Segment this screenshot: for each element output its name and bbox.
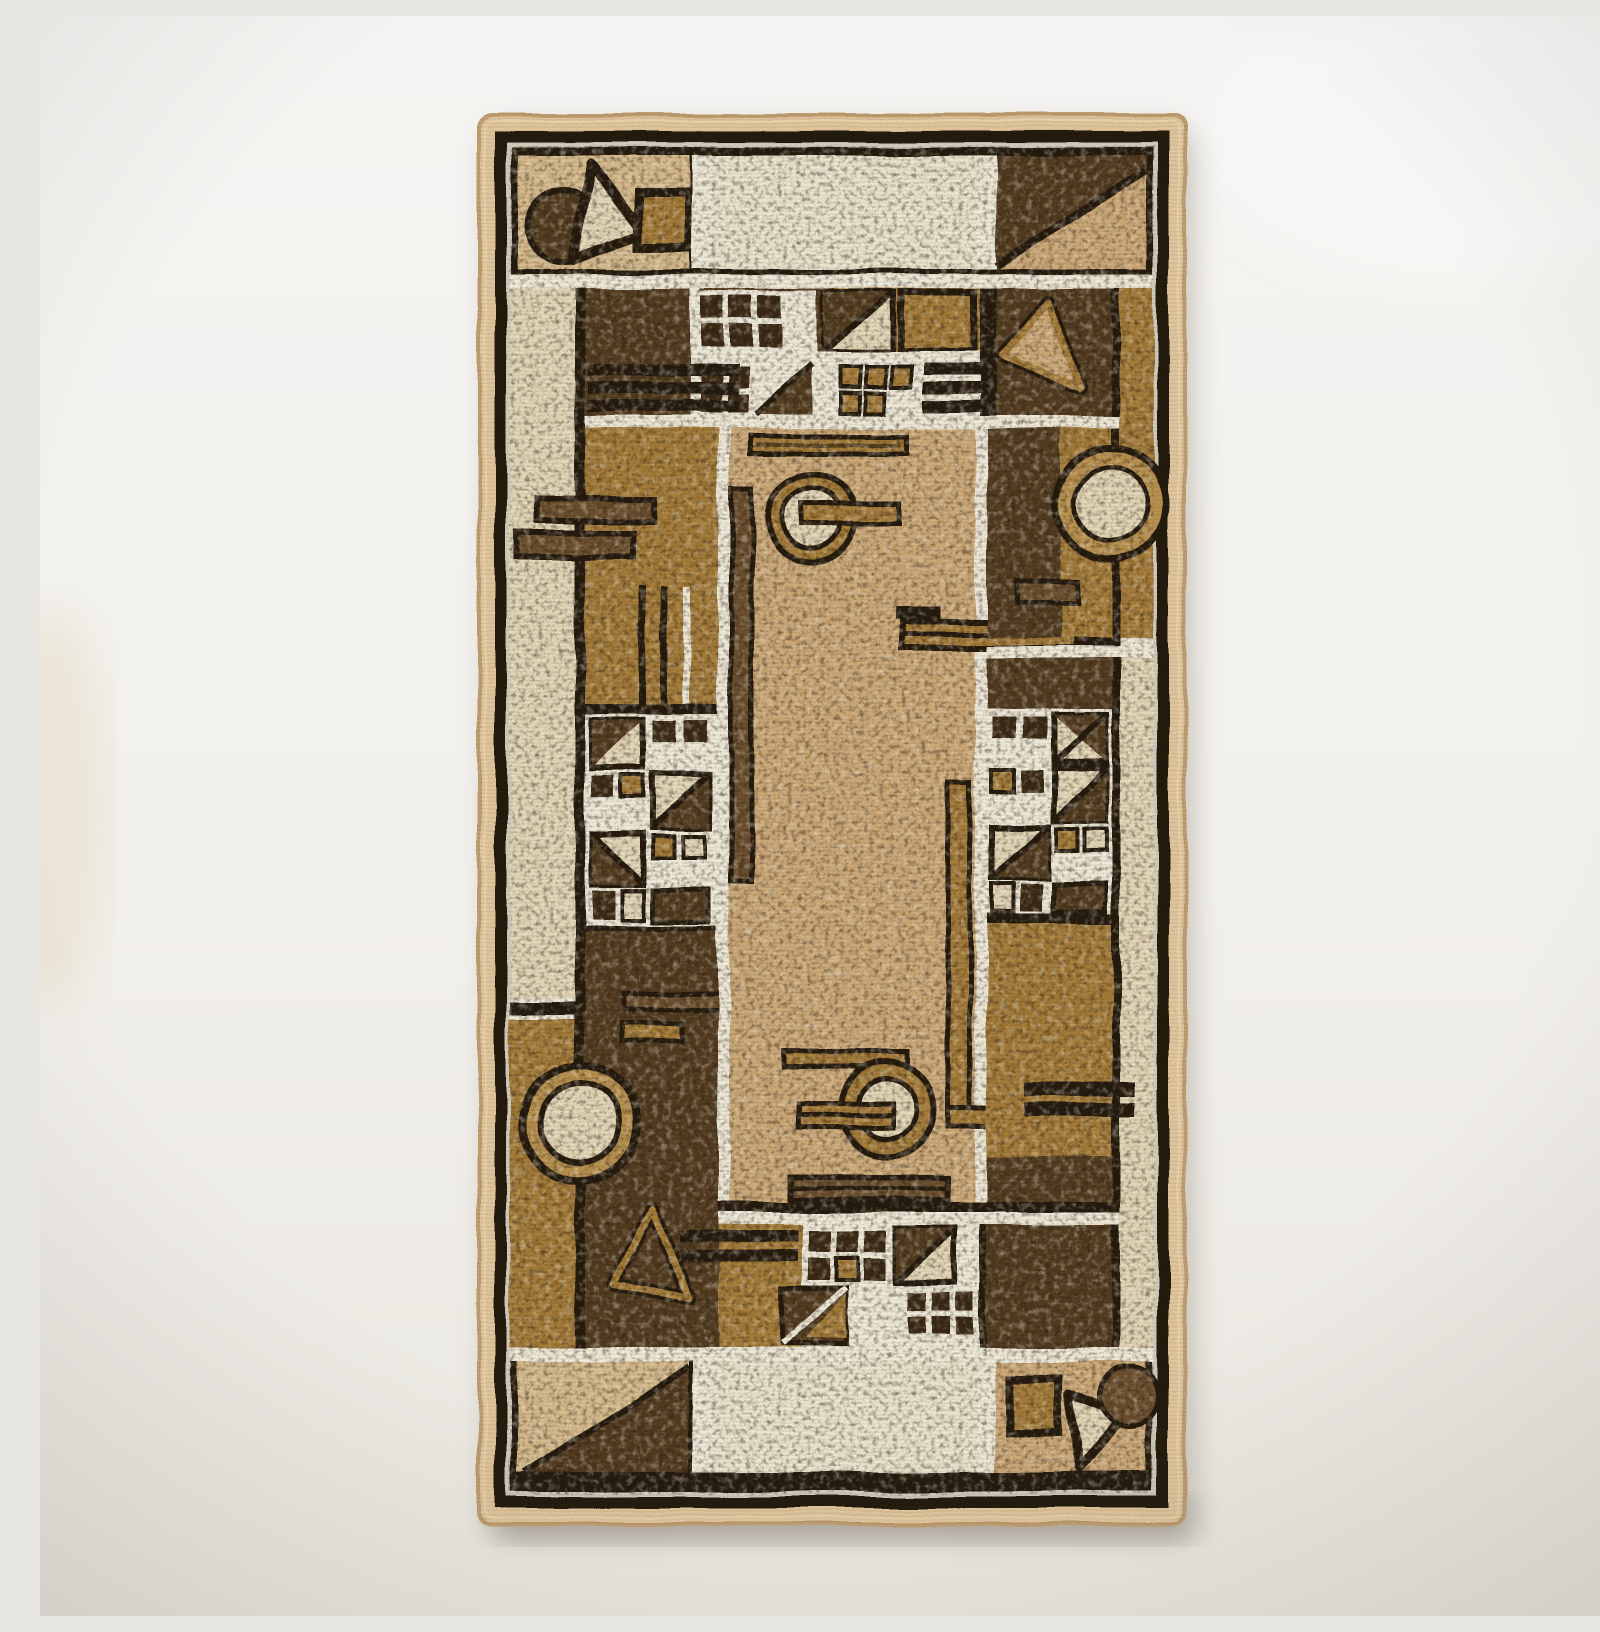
photo-canvas <box>40 16 1600 1616</box>
vignette <box>40 16 1600 1616</box>
photo-of-rug: Top-down photo of a vertical rectangular… <box>40 16 1600 1616</box>
